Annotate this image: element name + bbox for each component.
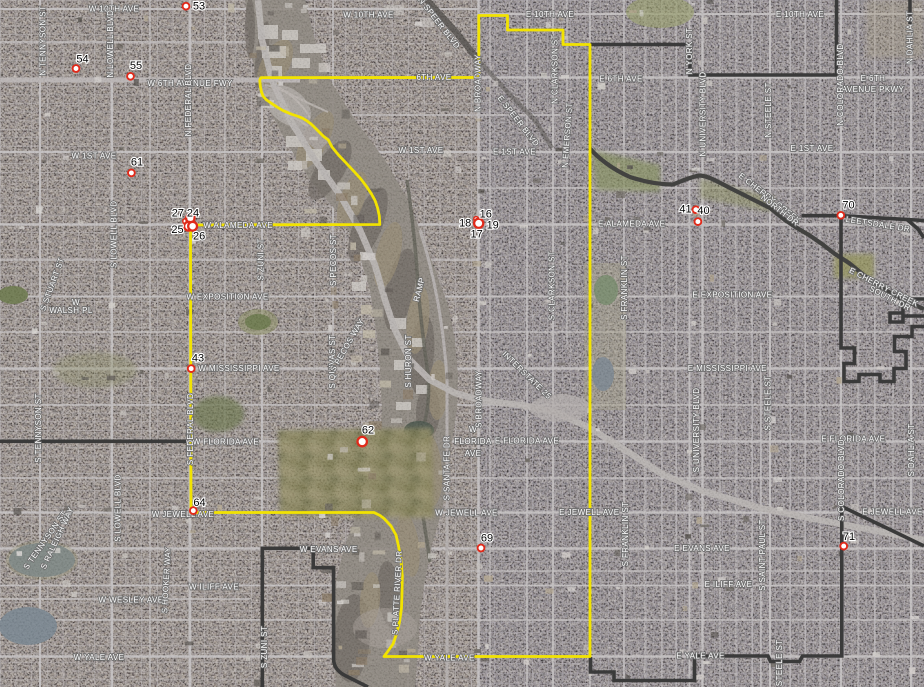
svg-text:N DAHLIA ST: N DAHLIA ST	[905, 11, 914, 64]
svg-text:S FRANKLIN ST: S FRANKLIN ST	[621, 502, 630, 567]
svg-text:19: 19	[487, 220, 499, 232]
svg-text:E 6TH AVE: E 6TH AVE	[599, 75, 642, 84]
svg-text:S STEELE ST: S STEELE ST	[775, 639, 784, 687]
svg-text:N FEDERAL BLVD: N FEDERAL BLVD	[184, 64, 193, 137]
svg-text:62: 62	[362, 425, 374, 437]
svg-text:N LOWELL BLVD: N LOWELL BLVD	[106, 10, 115, 78]
svg-text:WALSH PL: WALSH PL	[49, 306, 93, 315]
svg-text:S BROADWAY: S BROADWAY	[474, 370, 483, 428]
svg-text:40: 40	[697, 205, 709, 217]
svg-text:24: 24	[187, 207, 199, 219]
svg-text:70: 70	[842, 200, 854, 212]
svg-text:E 10TH AVE: E 10TH AVE	[776, 10, 824, 19]
svg-text:43: 43	[192, 353, 204, 365]
svg-text:S LOWELL BLVD: S LOWELL BLVD	[109, 201, 118, 268]
svg-text:25: 25	[171, 224, 183, 236]
svg-text:54: 54	[76, 54, 88, 66]
svg-text:S UNIVERSITY BLVD: S UNIVERSITY BLVD	[692, 388, 701, 473]
svg-text:E 10TH AVE: E 10TH AVE	[526, 10, 574, 19]
svg-text:S CLARKSON ST: S CLARKSON ST	[547, 251, 556, 320]
svg-text:S SAINT PAUL ST: S SAINT PAUL ST	[758, 519, 767, 591]
svg-text:26: 26	[193, 231, 205, 243]
svg-text:17: 17	[470, 229, 482, 241]
svg-text:W JEWELL AVE: W JEWELL AVE	[152, 510, 215, 519]
svg-text:W JEWELL AVE: W JEWELL AVE	[435, 509, 498, 518]
svg-text:N YORK ST: N YORK ST	[685, 28, 694, 75]
svg-text:S COLORADO BLVD: S COLORADO BLVD	[837, 439, 846, 521]
svg-text:E FLORIDA AVE: E FLORIDA AVE	[495, 437, 559, 446]
svg-text:N COLORADO BLVD: N COLORADO BLVD	[836, 43, 845, 125]
svg-text:41: 41	[679, 204, 691, 216]
svg-text:S TENNYSON ST: S TENNYSON ST	[34, 393, 43, 463]
svg-text:E 1ST AVE: E 1ST AVE	[493, 148, 536, 157]
svg-text:W 1ST AVE: W 1ST AVE	[398, 146, 443, 155]
svg-text:W EXPOSITION AVE: W EXPOSITION AVE	[186, 293, 268, 302]
svg-text:E 1ST AVE: E 1ST AVE	[791, 144, 834, 153]
svg-text:S ZUNI ST: S ZUNI ST	[260, 626, 269, 668]
svg-text:N BROADWAY: N BROADWAY	[474, 54, 483, 112]
svg-text:E 6TH: E 6TH	[861, 74, 886, 83]
svg-text:W ILIFF AVE: W ILIFF AVE	[189, 582, 239, 591]
svg-text:S PECOS ST: S PECOS ST	[329, 234, 338, 286]
svg-text:E ALAMEDA AVE: E ALAMEDA AVE	[598, 220, 665, 229]
svg-text:W 1ST AVE: W 1ST AVE	[71, 152, 116, 161]
svg-text:W FLORIDA AVE: W FLORIDA AVE	[193, 437, 259, 446]
svg-text:W ALAMEDA AVE: W ALAMEDA AVE	[203, 221, 273, 230]
svg-text:E MISSISSIPPI AVE: E MISSISSIPPI AVE	[688, 364, 767, 373]
svg-text:AVE: AVE	[465, 449, 482, 458]
svg-text:S HURON ST: S HURON ST	[404, 334, 413, 387]
svg-text:N TENNYSON ST: N TENNYSON ST	[39, 6, 48, 76]
svg-text:E JEWELL AVE: E JEWELL AVE	[559, 508, 619, 517]
svg-text:64: 64	[193, 497, 205, 509]
svg-text:6TH AVE: 6TH AVE	[416, 73, 451, 82]
svg-text:W YALE AVE: W YALE AVE	[424, 654, 475, 663]
svg-text:S FRANKLIN ST: S FRANKLIN ST	[620, 255, 629, 320]
svg-text:61: 61	[131, 157, 143, 169]
svg-text:E EVANS AVE: E EVANS AVE	[674, 544, 730, 553]
svg-text:S LOWELL BLVD: S LOWELL BLVD	[113, 474, 122, 541]
svg-text:S FEDERAL BLVD: S FEDERAL BLVD	[186, 393, 195, 465]
svg-text:S ZUNI ST: S ZUNI ST	[257, 238, 266, 280]
svg-text:E EXPOSITION AVE: E EXPOSITION AVE	[692, 291, 772, 300]
svg-text:E JEWELL AVE: E JEWELL AVE	[862, 507, 922, 516]
svg-text:E FLORIDA AVE: E FLORIDA AVE	[821, 434, 885, 443]
svg-text:16: 16	[480, 208, 492, 220]
svg-text:N UNIVERSITY BLVD: N UNIVERSITY BLVD	[698, 71, 707, 156]
svg-text:S STEELE ST: S STEELE ST	[763, 375, 772, 430]
svg-text:W YALE AVE: W YALE AVE	[74, 653, 125, 662]
svg-text:53: 53	[193, 1, 205, 13]
svg-text:W 10TH AVE: W 10TH AVE	[343, 10, 394, 19]
svg-text:69: 69	[481, 532, 493, 544]
svg-text:55: 55	[130, 60, 142, 72]
svg-text:27: 27	[172, 208, 184, 220]
svg-text:E YALE AVE: E YALE AVE	[676, 651, 724, 660]
svg-text:S DAHLIA ST: S DAHLIA ST	[907, 424, 916, 477]
svg-text:S SANTA FE DR: S SANTA FE DR	[442, 436, 451, 501]
svg-text:E ILIFF AVE: E ILIFF AVE	[705, 580, 753, 589]
svg-text:N STEELE ST: N STEELE ST	[764, 82, 773, 138]
svg-text:W MISSISSIPPI AVE: W MISSISSIPPI AVE	[198, 364, 279, 373]
svg-text:N CLARKSON ST: N CLARKSON ST	[550, 34, 559, 104]
svg-text:W WESLEY AVE: W WESLEY AVE	[99, 595, 164, 604]
svg-text:W EVANS AVE: W EVANS AVE	[300, 545, 358, 554]
svg-text:71: 71	[843, 531, 855, 543]
svg-text:AVENUE PKWY: AVENUE PKWY	[842, 85, 905, 94]
svg-text:FLORIDA: FLORIDA	[454, 437, 492, 446]
